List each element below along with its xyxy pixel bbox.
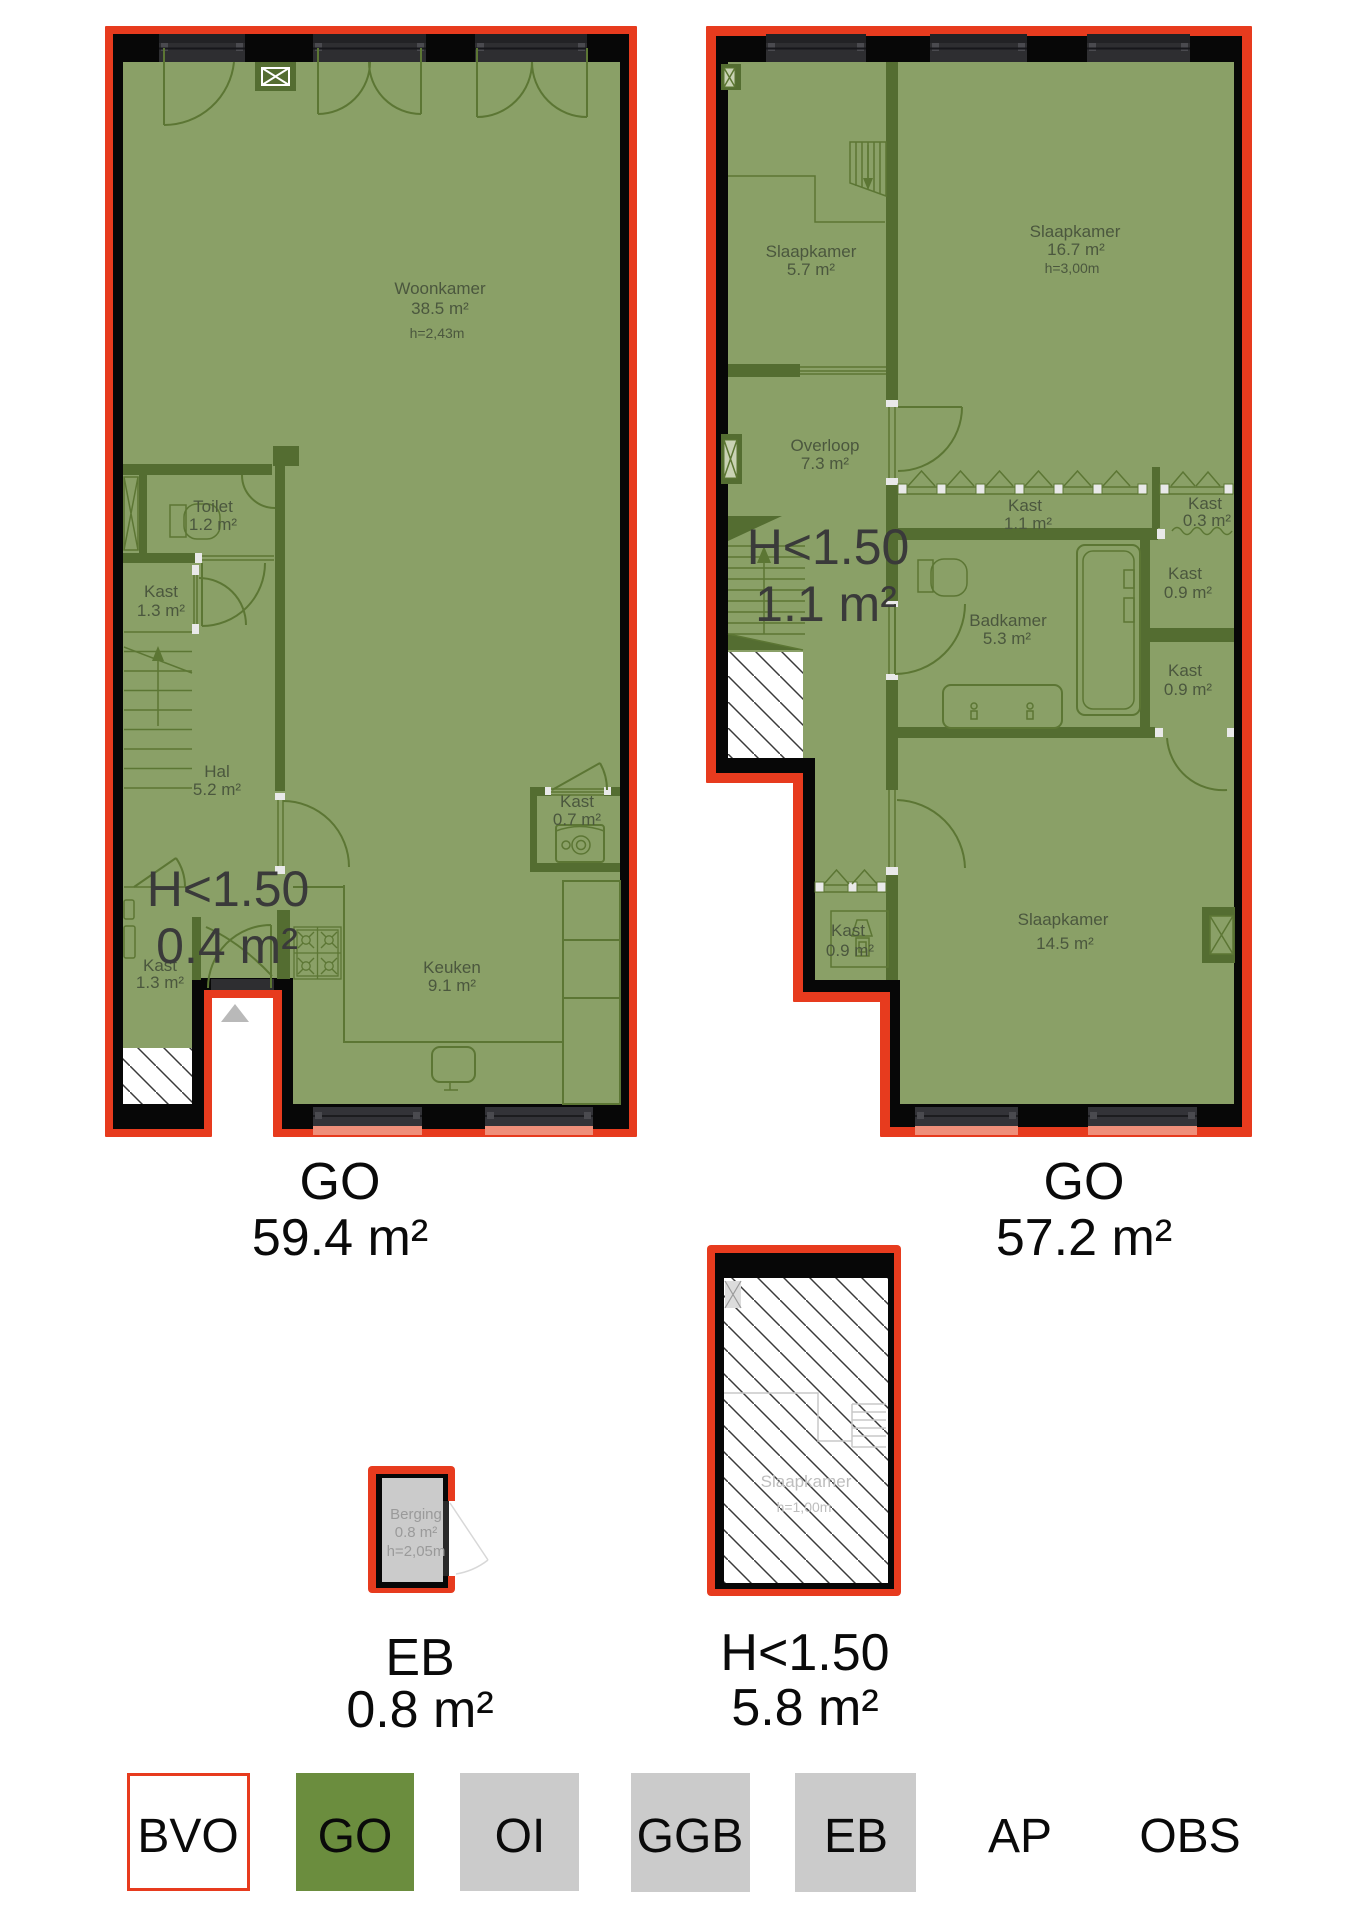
svg-text:Keuken: Keuken	[423, 958, 481, 977]
svg-text:Kast: Kast	[1168, 564, 1202, 583]
svg-text:59.4 m²: 59.4 m²	[252, 1209, 428, 1267]
svg-text:0.9 m²: 0.9 m²	[1164, 680, 1213, 699]
svg-text:16.7 m²: 16.7 m²	[1047, 240, 1105, 259]
svg-text:0.7 m²: 0.7 m²	[553, 810, 602, 829]
svg-text:GO: GO	[318, 1810, 393, 1863]
svg-text:5.3 m²: 5.3 m²	[983, 629, 1032, 648]
svg-text:Slaapkamer: Slaapkamer	[1030, 222, 1121, 241]
svg-text:0.3 m²: 0.3 m²	[1183, 511, 1232, 530]
svg-text:1.1 m²: 1.1 m²	[1004, 514, 1053, 533]
svg-text:Kast: Kast	[144, 582, 178, 601]
svg-text:0.9 m²: 0.9 m²	[826, 941, 875, 960]
svg-text:0.8 m²: 0.8 m²	[346, 1681, 493, 1739]
svg-text:h=2,05m: h=2,05m	[387, 1543, 446, 1560]
svg-text:57.2 m²: 57.2 m²	[996, 1209, 1172, 1267]
svg-text:H<1.50: H<1.50	[747, 519, 910, 575]
svg-text:5.2 m²: 5.2 m²	[193, 780, 242, 799]
svg-text:OI: OI	[495, 1810, 546, 1863]
svg-text:5.8 m²: 5.8 m²	[731, 1679, 878, 1737]
svg-text:14.5 m²: 14.5 m²	[1036, 934, 1094, 953]
svg-text:Kast: Kast	[1008, 496, 1042, 515]
svg-text:Berging: Berging	[390, 1506, 442, 1523]
svg-text:h=1,00m: h=1,00m	[777, 1499, 832, 1515]
svg-text:H<1.50: H<1.50	[147, 861, 310, 917]
svg-text:GGB: GGB	[637, 1810, 744, 1863]
svg-text:0.4 m²: 0.4 m²	[156, 918, 298, 974]
svg-text:EB: EB	[824, 1810, 888, 1863]
svg-text:AP: AP	[988, 1810, 1052, 1863]
svg-text:Kast: Kast	[1168, 661, 1202, 680]
svg-text:Woonkamer: Woonkamer	[394, 279, 486, 298]
svg-text:7.3 m²: 7.3 m²	[801, 454, 850, 473]
svg-text:38.5 m²: 38.5 m²	[411, 299, 469, 318]
svg-text:Overloop: Overloop	[791, 436, 860, 455]
svg-text:h=2,43m: h=2,43m	[410, 325, 465, 341]
svg-text:0.9 m²: 0.9 m²	[1164, 583, 1213, 602]
svg-text:Kast: Kast	[831, 921, 865, 940]
svg-text:OBS: OBS	[1139, 1810, 1240, 1863]
svg-text:Slaapkamer: Slaapkamer	[1018, 910, 1109, 929]
svg-text:Badkamer: Badkamer	[969, 611, 1047, 630]
svg-text:GO: GO	[1044, 1153, 1125, 1211]
svg-text:1.3 m²: 1.3 m²	[137, 601, 186, 620]
svg-text:0.8 m²: 0.8 m²	[395, 1524, 438, 1541]
svg-text:Kast: Kast	[560, 792, 594, 811]
svg-text:BVO: BVO	[137, 1810, 238, 1863]
svg-text:h=3,00m: h=3,00m	[1045, 260, 1100, 276]
svg-text:9.1 m²: 9.1 m²	[428, 976, 477, 995]
svg-text:1.3 m²: 1.3 m²	[136, 973, 185, 992]
svg-text:Slaapkamer: Slaapkamer	[761, 1472, 852, 1491]
svg-text:5.7 m²: 5.7 m²	[787, 260, 836, 279]
svg-text:GO: GO	[300, 1153, 381, 1211]
svg-text:1.2 m²: 1.2 m²	[189, 515, 238, 534]
svg-text:1.1 m²: 1.1 m²	[755, 576, 897, 632]
svg-text:Toilet: Toilet	[193, 497, 233, 516]
svg-text:H<1.50: H<1.50	[720, 1624, 889, 1682]
svg-text:Slaapkamer: Slaapkamer	[766, 242, 857, 261]
svg-text:Hal: Hal	[204, 762, 230, 781]
svg-text:EB: EB	[385, 1629, 454, 1687]
